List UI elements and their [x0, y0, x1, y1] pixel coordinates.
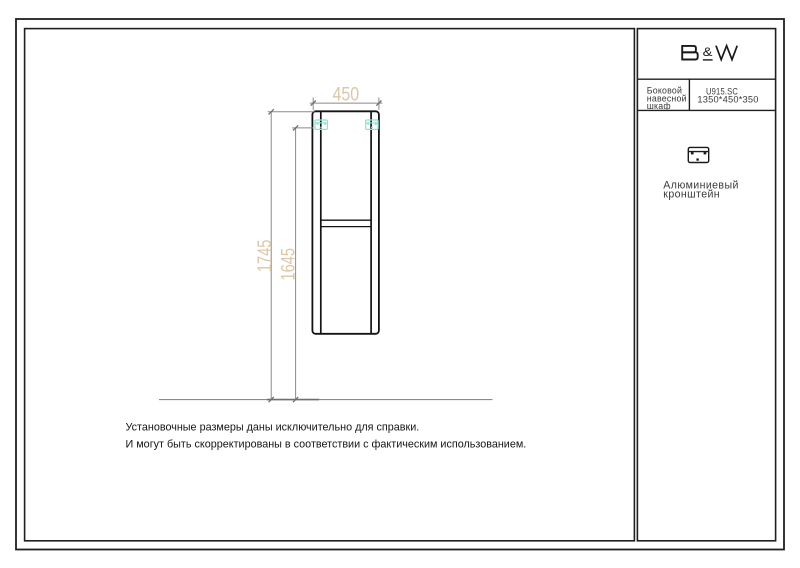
svg-text:1645: 1645 — [277, 248, 299, 281]
svg-text:1745: 1745 — [254, 240, 276, 273]
svg-text:кронштейн: кронштейн — [663, 188, 720, 200]
svg-text:1350*450*350: 1350*450*350 — [697, 95, 758, 105]
svg-text:И могут быть скорректированы в: И могут быть скорректированы в соответст… — [126, 439, 527, 451]
svg-text:шкаф: шкаф — [647, 101, 671, 111]
svg-text:Установочные размеры даны искл: Установочные размеры даны исключительно … — [126, 421, 420, 433]
svg-text:450: 450 — [333, 83, 360, 105]
svg-text:&: & — [703, 47, 713, 59]
